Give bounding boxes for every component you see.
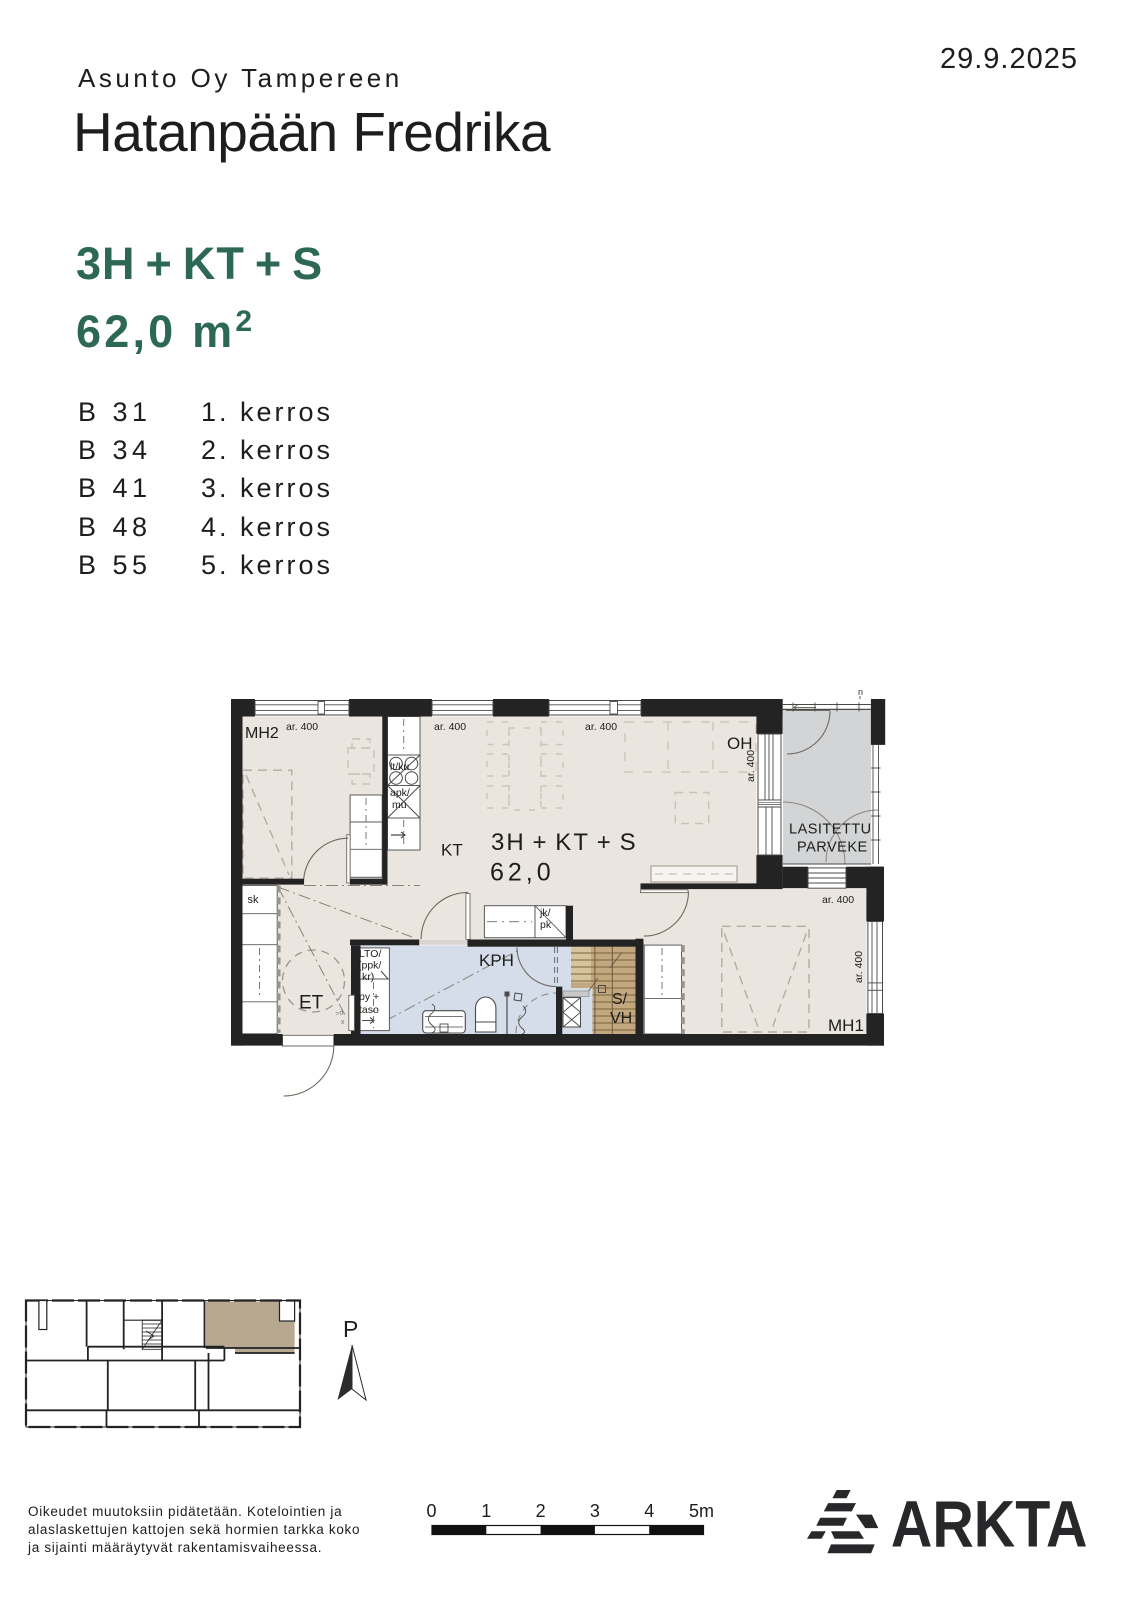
svg-text:VH: VH: [610, 1010, 632, 1027]
svg-text:0: 0: [427, 1501, 437, 1521]
svg-text:3: 3: [590, 1501, 600, 1521]
svg-text:5m: 5m: [689, 1501, 714, 1521]
svg-text:ar. 400: ar. 400: [745, 750, 757, 782]
svg-text:3H + KT + S: 3H + KT + S: [491, 829, 638, 856]
svg-text:PARVEKE: PARVEKE: [797, 840, 868, 856]
svg-text:4: 4: [644, 1501, 654, 1521]
svg-text:LASITETTU: LASITETTU: [789, 822, 872, 838]
svg-text:ar. 400: ar. 400: [853, 951, 865, 983]
svg-text:mu: mu: [392, 799, 407, 811]
svg-text:MH1: MH1: [828, 1016, 864, 1035]
svg-text:apk/: apk/: [390, 787, 410, 799]
svg-text:pk: pk: [540, 919, 552, 931]
svg-text:taso: taso: [359, 1004, 379, 1016]
svg-text:P: P: [343, 1316, 358, 1342]
svg-text:n: n: [858, 687, 863, 697]
svg-text:ar. 400: ar. 400: [434, 721, 466, 733]
svg-text:LTO/: LTO/: [359, 948, 381, 960]
svg-text:MH2: MH2: [245, 725, 279, 742]
svg-text:ar. 400: ar. 400: [286, 721, 318, 733]
svg-text:62,0: 62,0: [490, 859, 555, 887]
svg-text:ET: ET: [299, 993, 324, 1014]
svg-text:ar. 400: ar. 400: [822, 894, 854, 906]
svg-text:ar. 400: ar. 400: [585, 721, 617, 733]
svg-text:py +: py +: [359, 991, 379, 1003]
svg-text:1: 1: [481, 1501, 491, 1521]
svg-text:KT: KT: [441, 841, 463, 860]
svg-text:kr): kr): [362, 971, 374, 983]
svg-text:x: x: [341, 1019, 345, 1026]
svg-text:jk/: jk/: [539, 907, 551, 919]
svg-text:(ppk/: (ppk/: [358, 960, 381, 972]
svg-text:S/: S/: [612, 991, 628, 1008]
svg-text:ARKTA: ARKTA: [891, 1488, 1088, 1562]
svg-text:sk: sk: [248, 894, 260, 906]
svg-text:KPH: KPH: [479, 951, 514, 970]
svg-text:2: 2: [536, 1501, 546, 1521]
svg-text:lt/ku: lt/ku: [390, 761, 409, 773]
